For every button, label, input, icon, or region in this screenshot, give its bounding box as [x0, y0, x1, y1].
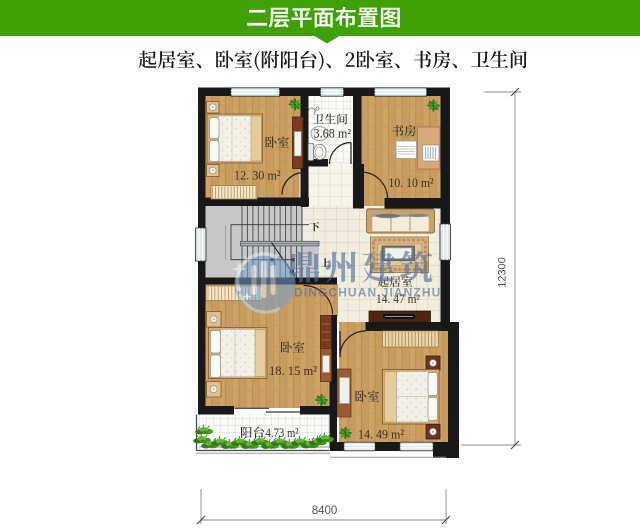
- svg-text:10. 10 m²: 10. 10 m²: [389, 175, 434, 190]
- svg-text:4.73 m²: 4.73 m²: [266, 425, 299, 440]
- svg-text:12300: 12300: [497, 257, 509, 288]
- svg-text:14. 49 m²: 14. 49 m²: [358, 427, 404, 442]
- svg-text:DINGCHUAN JIANZHU: DINGCHUAN JIANZHU: [294, 286, 441, 300]
- svg-text:12. 30 m²: 12. 30 m²: [234, 168, 281, 183]
- svg-text:3.68 m²: 3.68 m²: [314, 127, 352, 141]
- svg-text:18. 15 m²: 18. 15 m²: [269, 363, 317, 378]
- svg-text:8400: 8400: [312, 505, 338, 517]
